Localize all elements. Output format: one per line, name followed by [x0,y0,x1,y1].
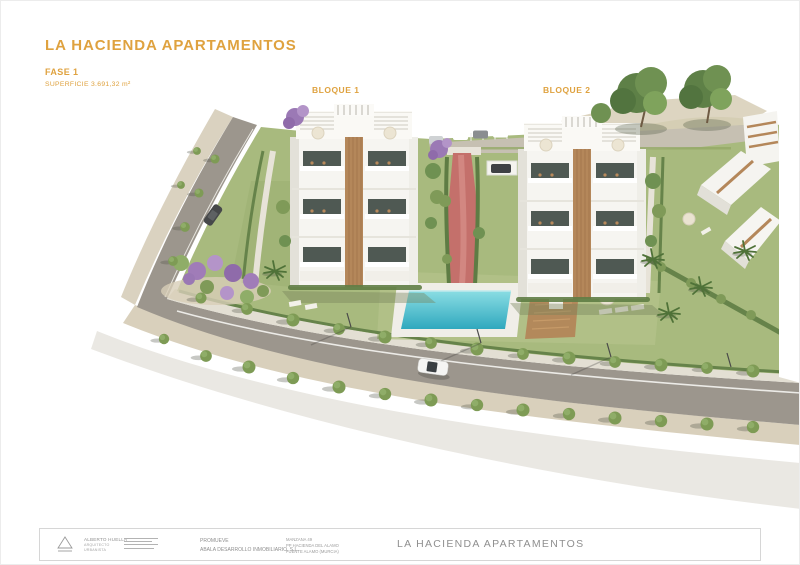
project-title: LA HACIENDA APARTAMENTOS [397,538,584,550]
site-block: MANZANA 49 PP HACIENDA DEL ALAMO FUENTE … [286,537,339,556]
promoter-block: PROMUEVE ABALA DESARROLLO INMOBILIARIO, … [200,537,299,554]
architect-role-2: URBANISTA [84,548,127,554]
promoter-name: ABALA DESARROLLO INMOBILIARIO, S.L. [200,546,299,555]
site-line-2: PP HACIENDA DEL ALAMO [286,543,339,549]
surface-label: SUPERFICIE 3.691,32 m² [45,81,131,88]
bloque1-label: BLOQUE 1 [312,85,359,95]
architect-contact-lines [124,538,160,551]
page-margin [779,41,800,383]
bloque1-building [282,104,436,303]
site-line-3: FUENTE ALAMO (MURCIA) [286,549,339,555]
bloque2-label: BLOQUE 2 [543,85,590,95]
architect-name: ALBERTO HUELLA [84,537,127,543]
promoter-label: PROMUEVE [200,537,299,546]
presentation-sheet: LA HACIENDA APARTAMENTOS FASE 1 SUPERFIC… [0,0,800,565]
sheet-title: LA HACIENDA APARTAMENTOS [45,37,297,54]
architect-block: ALBERTO HUELLA ARQUITECTO URBANISTA [84,537,127,554]
title-block: ALBERTO HUELLA ARQUITECTO URBANISTA PROM… [39,528,761,561]
phase-label: FASE 1 [45,67,78,77]
architect-logo-icon [56,535,74,555]
pool [391,283,523,337]
carport [487,161,517,175]
